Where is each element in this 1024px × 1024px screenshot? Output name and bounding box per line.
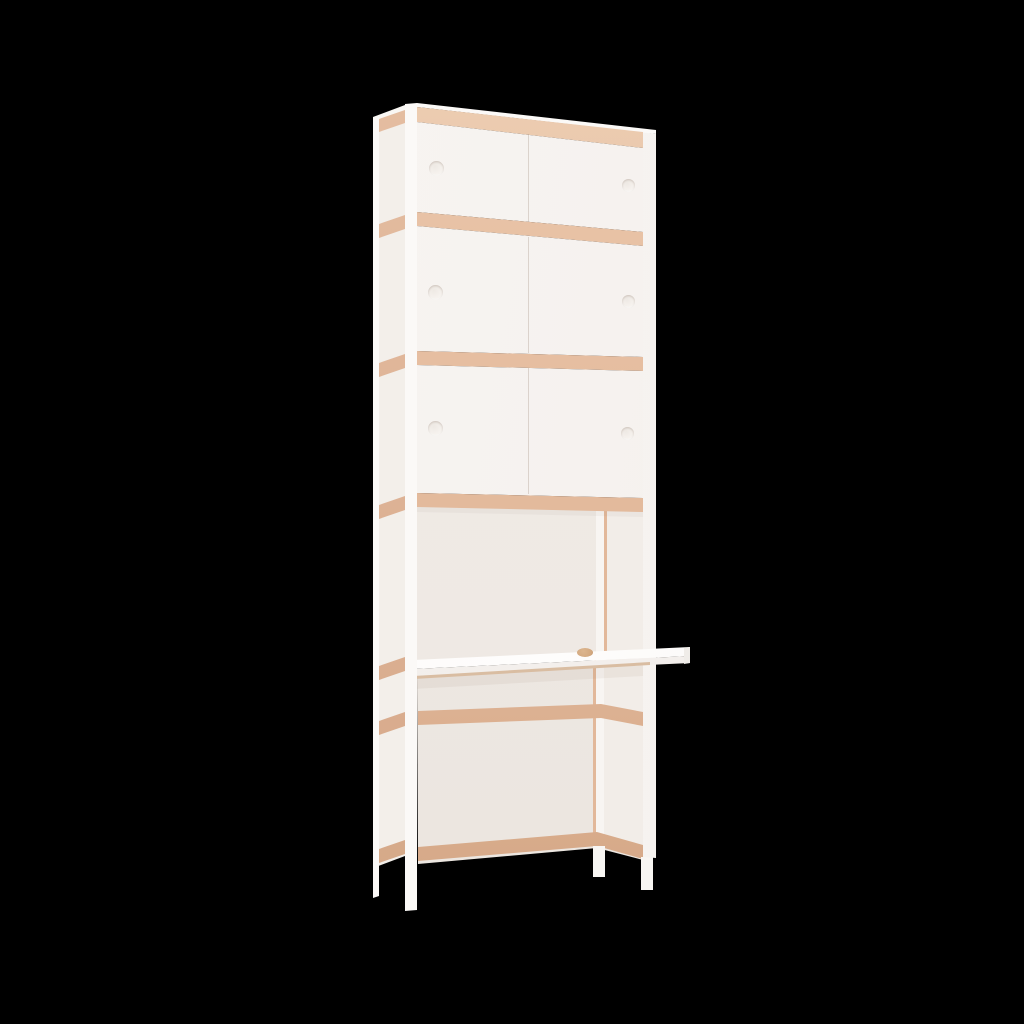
finger-hole-2-left (428, 285, 443, 300)
door-seam-1 (528, 134, 529, 222)
finger-hole-2-right (622, 295, 635, 308)
finger-hole-1-left (429, 161, 444, 176)
finger-hole-3-right (621, 427, 634, 440)
desk-cable-grommet (577, 648, 593, 657)
door-seam-2 (528, 237, 529, 353)
finger-hole-3-left (428, 421, 443, 436)
door-seam-3 (528, 368, 529, 494)
finger-hole-1-right (622, 179, 635, 192)
product-render-stage: 3D product render of a tall narrow white… (0, 0, 1024, 1024)
